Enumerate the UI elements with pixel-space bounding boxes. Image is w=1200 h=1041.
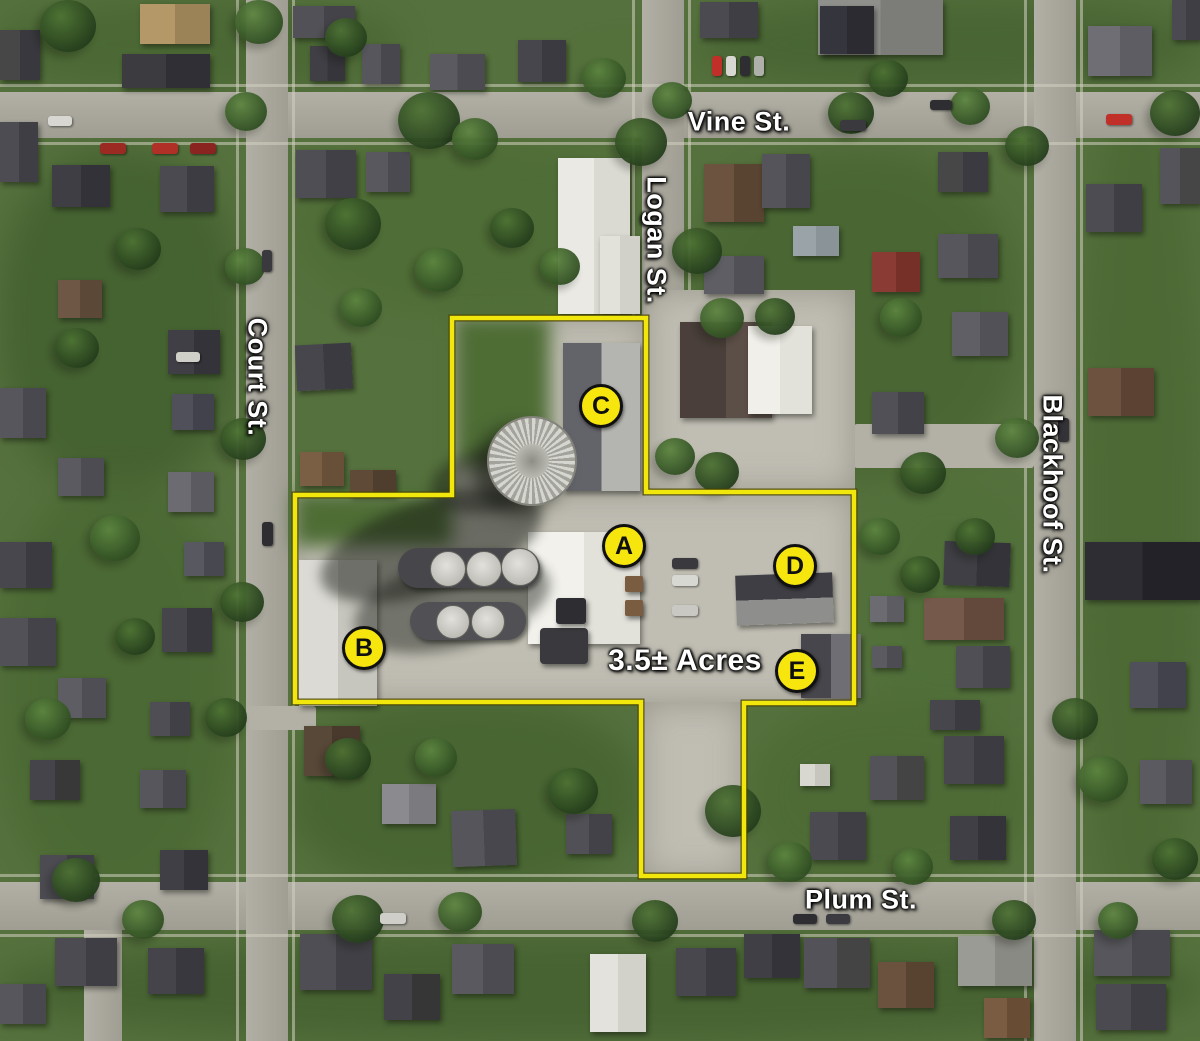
parcel-marker-a: A	[602, 524, 646, 568]
markers-layer: A B C D E	[0, 0, 1200, 1041]
parcel-marker-d: D	[773, 544, 817, 588]
parcel-marker-e: E	[775, 649, 819, 693]
parcel-marker-c: C	[579, 384, 623, 428]
parcel-marker-b: B	[342, 626, 386, 670]
aerial-map: Vine St. Logan St. Court St. Blackhoof S…	[0, 0, 1200, 1041]
